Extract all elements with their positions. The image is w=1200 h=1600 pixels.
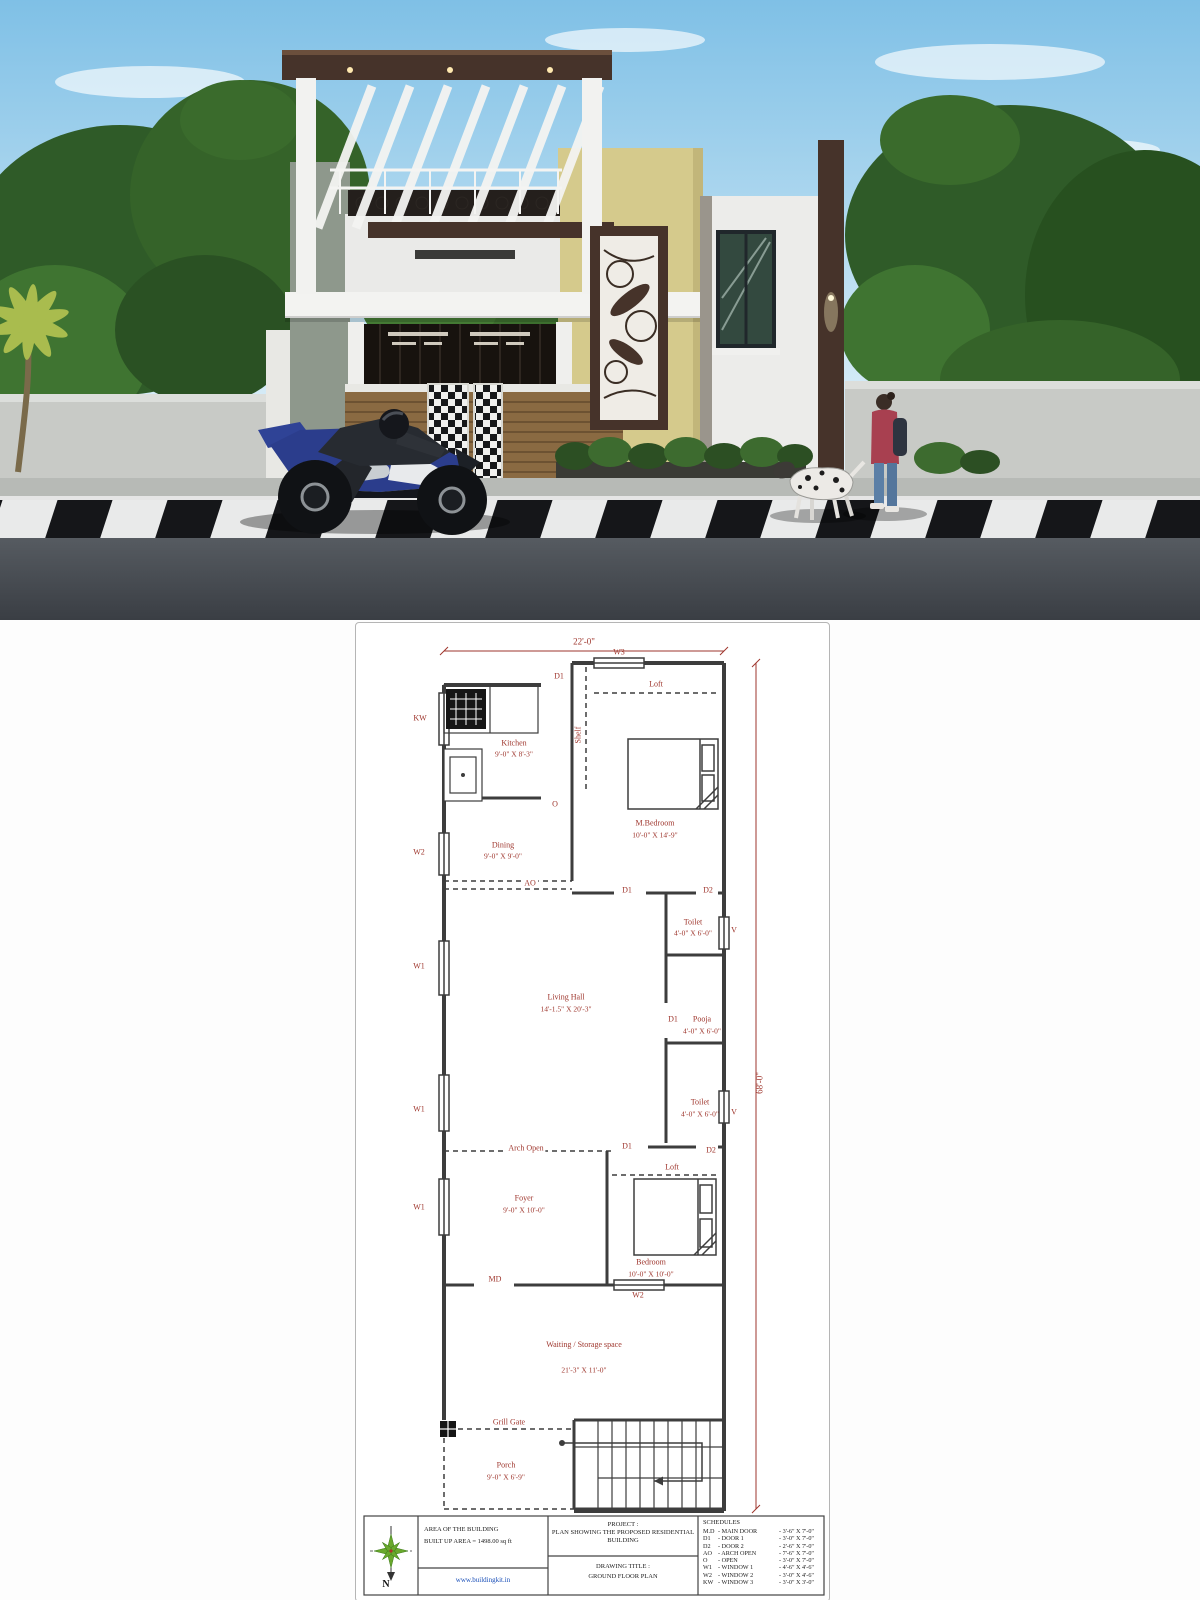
schedules-title: SCHEDULES: [703, 1519, 740, 1526]
marker-w1-a: W1: [413, 962, 425, 971]
schedule-row-D2: D2- DOOR 2- 2'-6" X 7'-0": [703, 1543, 821, 1550]
room-name-toilet-bottom: Toilet: [691, 1098, 710, 1107]
website-link[interactable]: www.buildingkit.in: [456, 1577, 510, 1585]
marker-w2-left: W2: [413, 848, 425, 857]
marker-d1-pooja: D1: [668, 1015, 678, 1024]
room-name-porch: Porch: [497, 1461, 516, 1470]
room-name-dining: Dining: [492, 841, 514, 850]
room-size-toilet-bottom: 4'-0" X 6'-0": [681, 1110, 719, 1119]
marker-v-bottom: V: [731, 1108, 737, 1117]
plan-linework: [356, 623, 829, 1600]
marker-grill-gate: Grill Gate: [491, 1418, 527, 1427]
staircase: [559, 1420, 724, 1509]
marker-arch-open: Arch Open: [506, 1144, 545, 1153]
room-size-m-bedroom: 10'-0" X 14'-9": [632, 831, 678, 840]
marker-ao: AO: [522, 879, 538, 888]
room-name-kitchen: Kitchen: [501, 739, 526, 748]
marker-loft-bedroom: Loft: [663, 1163, 681, 1172]
schedules-list: M.D- MAIN DOOR- 3'-6" X 7'-0"D1- DOOR 1-…: [703, 1528, 821, 1586]
marker-shelf: Shelf: [574, 725, 583, 746]
room-name-toilet-top: Toilet: [684, 918, 703, 927]
schedule-row-M.D: M.D- MAIN DOOR- 3'-6" X 7'-0": [703, 1528, 821, 1535]
area-line2: BUILT UP AREA = 1498.00 sq ft: [424, 1538, 512, 1546]
dim-width-label: 22'-0": [573, 638, 595, 647]
marker-d1-mbed: D1: [622, 886, 632, 895]
room-size-pooja: 4'-0" X 6'-0": [683, 1027, 721, 1036]
schedule-row-D1: D1- DOOR 1- 3'-0" X 7'-0": [703, 1535, 821, 1542]
room-size-toilet-top: 4'-0" X 6'-0": [674, 929, 712, 938]
art-panel: [590, 226, 668, 430]
outer-walls: [444, 663, 724, 1511]
marker-v-top: V: [731, 926, 737, 935]
schedule-row-KW: KW- WINDOW 3- 3'-0" X 3'-0": [703, 1579, 821, 1586]
checker-pillar-2: [474, 384, 502, 484]
person-jeans-left: [874, 463, 884, 505]
inner-walls: [444, 663, 724, 1509]
house-render-svg: [0, 0, 1200, 620]
marker-d1-kitchen: D1: [554, 672, 564, 681]
north-compass: [370, 1526, 412, 1581]
pergola-column-left: [296, 78, 316, 294]
area-line1: AREA OF THE BUILDING: [424, 1526, 498, 1534]
room-name-m-bedroom: M.Bedroom: [636, 819, 675, 828]
marker-w3: W3: [613, 648, 625, 657]
backpack: [893, 418, 907, 456]
schedule-row-O: O- OPEN- 3'-0" X 7'-0": [703, 1557, 821, 1564]
schedule-row-AO: AO- ARCH OPEN- 7'-6" X 7'-0": [703, 1550, 821, 1557]
north-label: N: [382, 1579, 389, 1590]
marker-loft-master: Loft: [647, 680, 665, 689]
project-text: PLAN SHOWING THE PROPOSED RESIDENTIAL BU…: [550, 1529, 696, 1544]
room-size-kitchen: 9'-0" X 8'-3": [495, 750, 533, 759]
room-size-dining: 9'-0" X 9'-0": [484, 852, 522, 861]
dim-height-label: 68'-0": [756, 1072, 765, 1094]
gate-hatch-box: [440, 1421, 456, 1437]
marker-kw: KW: [413, 714, 426, 723]
floor-plan-sheet: 22'-0" 68'-0" W3 D1 Loft Shelf KW O W2 A…: [355, 622, 830, 1600]
room-name-pooja: Pooja: [693, 1015, 711, 1024]
marker-w1-b: W1: [413, 1105, 425, 1114]
road: [0, 538, 1200, 620]
dimension-lines: [440, 647, 760, 1513]
bed-master: [628, 739, 718, 809]
room-size-living-hall: 14'-1.5" X 20'-3": [540, 1005, 591, 1014]
house-render: [0, 0, 1200, 620]
curb-stripes: [0, 498, 1200, 542]
right-window: [712, 230, 780, 355]
marker-o: O: [552, 800, 558, 809]
room-name-living-hall: Living Hall: [547, 993, 584, 1002]
drawing-title-label: DRAWING TITLE :: [596, 1563, 650, 1571]
marker-d2-toilet-bottom: D2: [706, 1146, 716, 1155]
dashed-lines: [444, 667, 720, 1509]
bed-second: [634, 1179, 716, 1255]
project-label: PROJECT :: [608, 1521, 639, 1529]
room-name-foyer: Foyer: [515, 1194, 534, 1203]
room-size-bedroom: 10'-0" X 10'-0": [628, 1270, 674, 1279]
schedule-row-W2: W2- WINDOW 2- 3'-0" X 4'-6": [703, 1572, 821, 1579]
screenshot-root: 22'-0" 68'-0" W3 D1 Loft Shelf KW O W2 A…: [0, 0, 1200, 1600]
schedule-row-W1: W1- WINDOW 1- 4'-6" X 4'-6": [703, 1564, 821, 1571]
room-size-foyer: 9'-0" X 10'-0": [503, 1206, 545, 1215]
marker-d1-bedroom: D1: [622, 1142, 632, 1151]
wall-reveal-slot: [415, 250, 515, 259]
room-name-waiting: Waiting / Storage space: [524, 1340, 644, 1350]
drawing-title-text: GROUND FLOOR PLAN: [588, 1573, 657, 1581]
room-size-waiting: 21'-3" X 11'-0": [561, 1366, 606, 1375]
room-name-bedroom: Bedroom: [636, 1258, 666, 1267]
marker-md: MD: [489, 1275, 502, 1284]
marker-d2-toilet-top: D2: [703, 886, 713, 895]
marker-w2-bottom: W2: [632, 1291, 644, 1300]
wall-lamp: [828, 295, 834, 301]
room-size-porch: 9'-0" X 6'-9": [487, 1473, 525, 1482]
marker-w1-c: W1: [413, 1203, 425, 1212]
